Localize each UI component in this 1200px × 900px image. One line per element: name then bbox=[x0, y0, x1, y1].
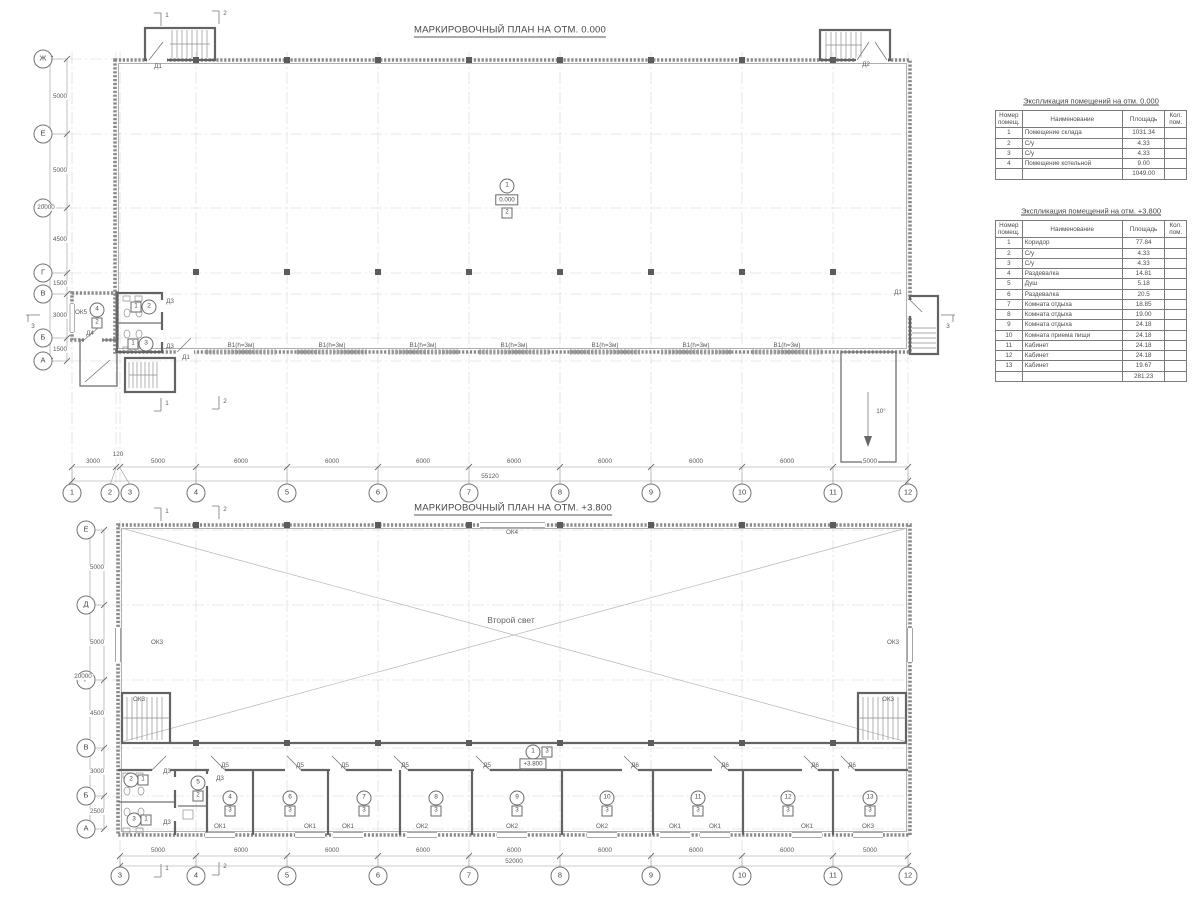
table-cell: 4.33 bbox=[1122, 148, 1165, 158]
table-cell: 9 bbox=[996, 320, 1023, 330]
table-header-cell: Площадь bbox=[1122, 111, 1165, 128]
table-cell: 9.00 bbox=[1122, 159, 1165, 169]
window-label-ok1: ОК1 bbox=[214, 824, 226, 830]
door-label-d3: Д3 bbox=[166, 344, 174, 350]
finish-type-square: 3 bbox=[359, 806, 370, 817]
axis-bubble: Ж bbox=[34, 50, 53, 69]
section-mark-2: 2 bbox=[223, 507, 227, 513]
door-label-d3: Д3 bbox=[163, 769, 171, 775]
room-number-circle: 11 bbox=[691, 791, 706, 806]
table-total-cell: 1049.00 bbox=[1122, 169, 1165, 179]
table-header-cell: Номер помещ. bbox=[996, 221, 1023, 238]
axis-bubble: Б bbox=[34, 329, 53, 348]
table-cell: Комната отдыха bbox=[1022, 320, 1122, 330]
dimension-label: 5000 bbox=[52, 94, 68, 100]
axis-bubble: 7 bbox=[460, 867, 479, 886]
table-row: 2С/у4.33 bbox=[996, 138, 1187, 148]
finish-type-square: 3 bbox=[865, 806, 876, 817]
table-cell: 4.33 bbox=[1122, 248, 1165, 258]
axis-bubble: 4 bbox=[187, 867, 206, 886]
door-label-d3: Д3 bbox=[166, 299, 174, 305]
table-cell: 3 bbox=[996, 258, 1023, 268]
table-total-cell bbox=[1165, 371, 1187, 381]
axis-bubble: 10 bbox=[733, 867, 752, 886]
room-number-circle: 12 bbox=[781, 791, 796, 806]
finish-type-square: 3 bbox=[431, 806, 442, 817]
table-cell: С/у bbox=[1022, 138, 1122, 148]
dimension-label: 5000 bbox=[150, 459, 166, 465]
window-label-ok1: ОК1 bbox=[304, 824, 316, 830]
table-cell: Раздевалка bbox=[1022, 269, 1122, 279]
table-cell bbox=[1165, 248, 1187, 258]
table-cell: Кабинет bbox=[1022, 351, 1122, 361]
opening-label-v1: В1(h=3м) bbox=[683, 343, 710, 349]
table-cell: 4 bbox=[996, 269, 1023, 279]
dimension-label: 2500 bbox=[89, 809, 105, 815]
table-cell bbox=[1165, 128, 1187, 138]
dimension-label: 52000 bbox=[504, 859, 524, 865]
axis-bubble: А bbox=[34, 352, 53, 371]
dimension-label: 5000 bbox=[52, 168, 68, 174]
axis-bubble: 8 bbox=[551, 484, 570, 503]
explication-table-1-title: Экспликация помещений на отм. 0.000 bbox=[1023, 97, 1159, 106]
axis-bubble: 6 bbox=[369, 484, 388, 503]
room-number-circle: 5 bbox=[191, 776, 206, 791]
dimension-label: 6000 bbox=[324, 459, 340, 465]
table-cell: С/у bbox=[1022, 148, 1122, 158]
door-label-d1: Д1 bbox=[894, 290, 902, 296]
room-number-circle: 2 bbox=[124, 773, 139, 788]
explication-table: Номер помещ.НаименованиеПлощадьКол. пом.… bbox=[995, 220, 1187, 382]
window-label-ok5: ОК5 bbox=[75, 310, 87, 316]
axis-bubble: 9 bbox=[642, 867, 661, 886]
table-row: 3С/у4.33 bbox=[996, 258, 1187, 268]
axis-bubble: 7 bbox=[460, 484, 479, 503]
room-number-circle: 4 bbox=[223, 791, 238, 806]
axis-bubble: 3 bbox=[121, 484, 140, 503]
table-row: 8Комната отдыха19.00 bbox=[996, 310, 1187, 320]
table-row: 4Помещение котельной9.00 bbox=[996, 159, 1187, 169]
dimension-label: 6000 bbox=[506, 848, 522, 854]
dimension-label: 5000 bbox=[89, 565, 105, 571]
finish-type-square: 1 bbox=[141, 815, 152, 826]
window-label-ok2: ОК2 bbox=[416, 824, 428, 830]
explication-table-2-title: Экспликация помещений на отм. +3.800 bbox=[1021, 207, 1161, 216]
table-row: 7Комната отдыха18.85 bbox=[996, 299, 1187, 309]
table-total-cell bbox=[996, 371, 1023, 381]
table-cell: Помещение склада bbox=[1022, 128, 1122, 138]
table-cell: 12 bbox=[996, 351, 1023, 361]
axis-bubble: 11 bbox=[824, 484, 843, 503]
table-row: 5Душ5.18 bbox=[996, 279, 1187, 289]
table-cell bbox=[1165, 289, 1187, 299]
dimension-label: 4500 bbox=[52, 237, 68, 243]
table-cell bbox=[1165, 361, 1187, 371]
table-cell: Кабинет bbox=[1022, 340, 1122, 350]
door-label-d3: Д3 bbox=[163, 820, 171, 826]
dimension-label: 3000 bbox=[89, 769, 105, 775]
axis-bubble: Г bbox=[34, 264, 53, 283]
section-mark-1: 1 bbox=[165, 509, 169, 515]
axis-bubble: 3 bbox=[111, 867, 130, 886]
room-number-circle: 6 bbox=[283, 791, 298, 806]
table-row: 3С/у4.33 bbox=[996, 148, 1187, 158]
window-label-ok1: ОК1 bbox=[709, 824, 721, 830]
table-cell bbox=[1165, 299, 1187, 309]
dimension-label: 6000 bbox=[779, 459, 795, 465]
window-label-ok2: ОК2 bbox=[596, 824, 608, 830]
table-total-cell bbox=[1022, 169, 1122, 179]
table-cell: 7 bbox=[996, 299, 1023, 309]
section-mark-2: 2 bbox=[223, 399, 227, 405]
room-number-circle: 13 bbox=[863, 791, 878, 806]
finish-type-square: 3 bbox=[542, 747, 553, 758]
table-cell: Комната отдыха bbox=[1022, 299, 1122, 309]
table-total-cell bbox=[996, 169, 1023, 179]
explication-table: Номер помещ.НаименованиеПлощадьКол. пом.… bbox=[995, 110, 1187, 180]
axis-bubble: Д bbox=[77, 596, 96, 615]
table-cell: 24.18 bbox=[1122, 340, 1165, 350]
door-label-d6: Д6 bbox=[721, 763, 729, 769]
door-label-d5: Д5 bbox=[483, 763, 491, 769]
opening-label-v1: В1(h=3м) bbox=[501, 343, 528, 349]
section-mark-3: 3 bbox=[31, 324, 35, 330]
table-cell: 24.18 bbox=[1122, 330, 1165, 340]
explication-table-1: Номер помещ.НаименованиеПлощадьКол. пом.… bbox=[995, 110, 1187, 180]
opening-label-v1: В1(h=3м) bbox=[774, 343, 801, 349]
dimension-label: 6000 bbox=[233, 848, 249, 854]
axis-bubble: 2 bbox=[101, 484, 120, 503]
dimension-label: 6000 bbox=[688, 848, 704, 854]
table-row: 10Комната приема пищи24.18 bbox=[996, 330, 1187, 340]
door-label-d5: Д5 bbox=[296, 763, 304, 769]
door-label-d1: Д1 bbox=[154, 64, 162, 70]
axis-bubble: А bbox=[77, 820, 96, 839]
table-header-cell: Наименование bbox=[1022, 111, 1122, 128]
table-cell: 5.18 bbox=[1122, 279, 1165, 289]
finish-type-square: 3 bbox=[783, 806, 794, 817]
table-cell: Коридор bbox=[1022, 238, 1122, 248]
door-label-d5: Д5 bbox=[221, 763, 229, 769]
table-header-cell: Наименование bbox=[1022, 221, 1122, 238]
table-row: 13Кабинет19.67 bbox=[996, 361, 1187, 371]
section-mark-2: 2 bbox=[223, 864, 227, 870]
room-number-circle: 3 bbox=[139, 337, 154, 352]
dimension-label: 6000 bbox=[597, 459, 613, 465]
table-header-cell: Кол. пом. bbox=[1165, 221, 1187, 238]
table-cell: 20.5 bbox=[1122, 289, 1165, 299]
explication-table-2: Номер помещ.НаименованиеПлощадьКол. пом.… bbox=[995, 220, 1187, 382]
dimension-label: 5000 bbox=[89, 640, 105, 646]
door-label-d3: Д3 bbox=[216, 776, 224, 782]
finish-type-square: 3 bbox=[285, 806, 296, 817]
dimension-label: 6000 bbox=[233, 459, 249, 465]
plan-upper-title: МАРКИРОВОЧНЫЙ ПЛАН НА ОТМ. +3.800 bbox=[414, 503, 612, 516]
window-label-ok1: ОК1 bbox=[801, 824, 813, 830]
window-label-ok1: ОК1 bbox=[342, 824, 354, 830]
table-cell: 1 bbox=[996, 128, 1023, 138]
dimension-label: 6000 bbox=[506, 459, 522, 465]
table-cell: 10 bbox=[996, 330, 1023, 340]
room-number-circle: 10 bbox=[600, 791, 615, 806]
axis-bubble: 12 bbox=[899, 867, 918, 886]
axis-bubble: 4 bbox=[187, 484, 206, 503]
table-cell: Душ bbox=[1022, 279, 1122, 289]
window-label-ok2: ОК2 bbox=[506, 824, 518, 830]
door-label-d1: Д1 bbox=[182, 355, 190, 361]
finish-type-square: 2 bbox=[92, 318, 103, 329]
table-header-cell: Номер помещ. bbox=[996, 111, 1023, 128]
axis-bubble: 5 bbox=[278, 867, 297, 886]
table-cell: Раздевалка bbox=[1022, 289, 1122, 299]
table-cell: 5 bbox=[996, 279, 1023, 289]
axis-bubble: В bbox=[77, 739, 96, 758]
dimension-label: 3000 bbox=[85, 459, 101, 465]
opening-label-v1: В1(h=3м) bbox=[410, 343, 437, 349]
finish-type-square: 1 bbox=[131, 302, 142, 313]
table-cell bbox=[1165, 279, 1187, 289]
axis-bubble: Б bbox=[77, 787, 96, 806]
table-cell: 18.85 bbox=[1122, 299, 1165, 309]
door-label-d6: Д6 bbox=[811, 763, 819, 769]
table-cell: 1031.34 bbox=[1122, 128, 1165, 138]
finish-type-square: 3 bbox=[225, 806, 236, 817]
door-label-d2: Д2 bbox=[862, 62, 870, 68]
axis-bubble: 9 bbox=[642, 484, 661, 503]
table-row: 2С/у4.33 bbox=[996, 248, 1187, 258]
table-cell: 3 bbox=[996, 148, 1023, 158]
table-cell bbox=[1165, 340, 1187, 350]
door-label-d5: Д5 bbox=[341, 763, 349, 769]
opening-label-v1: В1(h=3м) bbox=[319, 343, 346, 349]
table-cell: Кабинет bbox=[1022, 361, 1122, 371]
table-cell: С/у bbox=[1022, 248, 1122, 258]
room-number-circle: 1 bbox=[526, 745, 541, 760]
dimension-label: 6000 bbox=[779, 848, 795, 854]
room-number-circle: 8 bbox=[429, 791, 444, 806]
window-label-ok4: ОК4 bbox=[506, 530, 518, 536]
table-cell: 19.67 bbox=[1122, 361, 1165, 371]
window-label-ok1: ОК1 bbox=[669, 824, 681, 830]
dimension-label: 6000 bbox=[597, 848, 613, 854]
ramp-slope-label: 10° bbox=[876, 409, 886, 415]
room-number-circle: 1 bbox=[500, 179, 515, 194]
table-header-row: Номер помещ.НаименованиеПлощадьКол. пом. bbox=[996, 111, 1187, 128]
level-box: +3.800 bbox=[519, 758, 546, 769]
dimension-label: 5000 bbox=[150, 848, 166, 854]
table-cell bbox=[1165, 269, 1187, 279]
table-cell bbox=[1165, 238, 1187, 248]
table-row: 4Раздевалка14.81 bbox=[996, 269, 1187, 279]
table-total-cell bbox=[1165, 169, 1187, 179]
table-header-cell: Площадь bbox=[1122, 221, 1165, 238]
door-label-d6: Д6 bbox=[848, 763, 856, 769]
table-header-row: Номер помещ.НаименованиеПлощадьКол. пом. bbox=[996, 221, 1187, 238]
axis-bubble: 8 bbox=[551, 867, 570, 886]
axis-bubble: 11 bbox=[824, 867, 843, 886]
door-label-d5: Д5 bbox=[401, 763, 409, 769]
plan-ground-title: МАРКИРОВОЧНЫЙ ПЛАН НА ОТМ. 0.000 bbox=[414, 25, 606, 38]
table-total-cell: 281.23 bbox=[1122, 371, 1165, 381]
table-cell bbox=[1165, 148, 1187, 158]
table-cell: 2 bbox=[996, 248, 1023, 258]
axis-bubble: 1 bbox=[63, 484, 82, 503]
finish-type-square: 1 bbox=[128, 339, 139, 350]
dimension-label: 1500 bbox=[52, 347, 68, 353]
window-label-ok3: ОК3 bbox=[862, 824, 874, 830]
axis-bubble: 6 bbox=[369, 867, 388, 886]
finish-type-square: 1 bbox=[138, 775, 149, 786]
table-row: 1Коридор77.84 bbox=[996, 238, 1187, 248]
table-cell bbox=[1165, 138, 1187, 148]
level-box: 0.000 bbox=[495, 194, 518, 205]
dimension-label: 5000 bbox=[862, 848, 878, 854]
table-cell: 8 bbox=[996, 310, 1023, 320]
table-cell: 4.33 bbox=[1122, 258, 1165, 268]
window-label-ok3: ОК3 bbox=[887, 640, 899, 646]
table-cell: 14.81 bbox=[1122, 269, 1165, 279]
table-cell: 4.33 bbox=[1122, 138, 1165, 148]
opening-label-v1: В1(h=3м) bbox=[228, 343, 255, 349]
drawing-sheet: МАРКИРОВОЧНЫЙ ПЛАН НА ОТМ. 0.000 МАРКИРО… bbox=[0, 0, 1200, 900]
window-label-ok3: ОК3 bbox=[882, 697, 894, 703]
finish-type-square: 2 bbox=[193, 791, 204, 802]
table-cell bbox=[1165, 330, 1187, 340]
table-cell bbox=[1165, 159, 1187, 169]
window-label-ok3: ОК3 bbox=[133, 697, 145, 703]
table-row: 9Комната отдыха24.18 bbox=[996, 320, 1187, 330]
table-cell: 11 bbox=[996, 340, 1023, 350]
axis-bubble: Е bbox=[77, 521, 96, 540]
dimension-label: 5000 bbox=[862, 459, 878, 465]
room-number-circle: 2 bbox=[142, 300, 157, 315]
table-header-cell: Кол. пом. bbox=[1165, 111, 1187, 128]
axis-bubble: 12 bbox=[899, 484, 918, 503]
axis-bubble: 10 bbox=[733, 484, 752, 503]
axis-bubble: В bbox=[34, 285, 53, 304]
table-cell: 24.18 bbox=[1122, 320, 1165, 330]
dimension-label: 6000 bbox=[688, 459, 704, 465]
table-cell: Комната приема пищи bbox=[1022, 330, 1122, 340]
table-cell bbox=[1165, 310, 1187, 320]
section-mark-3: 3 bbox=[946, 324, 950, 330]
section-mark-2: 2 bbox=[223, 11, 227, 17]
table-cell: 13 bbox=[996, 361, 1023, 371]
window-label-ok3: ОК3 bbox=[151, 640, 163, 646]
table-row: 1Помещение склада1031.34 bbox=[996, 128, 1187, 138]
table-cell: С/у bbox=[1022, 258, 1122, 268]
table-row: 6Раздевалка20.5 bbox=[996, 289, 1187, 299]
room-number-circle: 9 bbox=[510, 791, 525, 806]
table-cell: 1 bbox=[996, 238, 1023, 248]
table-cell: 6 bbox=[996, 289, 1023, 299]
door-label-d6: Д6 bbox=[631, 763, 639, 769]
opening-label-v1: В1(h=3м) bbox=[592, 343, 619, 349]
second-light-label: Второй свет bbox=[487, 616, 535, 625]
dimension-label: 20000 bbox=[36, 205, 56, 211]
room-number-circle: 4 bbox=[90, 303, 105, 318]
table-cell bbox=[1165, 258, 1187, 268]
axis-bubble: Е bbox=[34, 125, 53, 144]
finish-type-square: 3 bbox=[693, 806, 704, 817]
door-label-d4: Д4 bbox=[86, 331, 94, 337]
dimension-label: 1500 bbox=[52, 281, 68, 287]
section-mark-1: 1 bbox=[165, 401, 169, 407]
table-total-cell bbox=[1022, 371, 1122, 381]
table-cell: Помещение котельной bbox=[1022, 159, 1122, 169]
dimension-label: 20000 bbox=[73, 674, 93, 680]
finish-type-square: 2 bbox=[502, 208, 513, 219]
dimension-label: 4500 bbox=[89, 711, 105, 717]
table-cell: 2 bbox=[996, 138, 1023, 148]
labels-layer: МАРКИРОВОЧНЫЙ ПЛАН НА ОТМ. 0.000 МАРКИРО… bbox=[0, 0, 1200, 900]
dimension-label: 6000 bbox=[415, 848, 431, 854]
dimension-label: 6000 bbox=[415, 459, 431, 465]
room-number-circle: 3 bbox=[127, 813, 142, 828]
section-mark-1: 1 bbox=[165, 13, 169, 19]
table-cell: 19.00 bbox=[1122, 310, 1165, 320]
table-cell: Комната отдыха bbox=[1022, 310, 1122, 320]
table-cell: 24.18 bbox=[1122, 351, 1165, 361]
dimension-label: 6000 bbox=[324, 848, 340, 854]
table-cell bbox=[1165, 320, 1187, 330]
table-cell: 77.84 bbox=[1122, 238, 1165, 248]
axis-bubble: 5 bbox=[278, 484, 297, 503]
dimension-label: 3000 bbox=[52, 313, 68, 319]
dimension-label: 55120 bbox=[480, 474, 500, 480]
finish-type-square: 3 bbox=[512, 806, 523, 817]
table-total-row: 281.23 bbox=[996, 371, 1187, 381]
table-cell bbox=[1165, 351, 1187, 361]
finish-type-square: 3 bbox=[602, 806, 613, 817]
dimension-label: 120 bbox=[112, 452, 125, 458]
table-row: 12Кабинет24.18 bbox=[996, 351, 1187, 361]
table-row: 11Кабинет24.18 bbox=[996, 340, 1187, 350]
section-mark-1: 1 bbox=[165, 866, 169, 872]
table-total-row: 1049.00 bbox=[996, 169, 1187, 179]
room-number-circle: 7 bbox=[357, 791, 372, 806]
table-cell: 4 bbox=[996, 159, 1023, 169]
